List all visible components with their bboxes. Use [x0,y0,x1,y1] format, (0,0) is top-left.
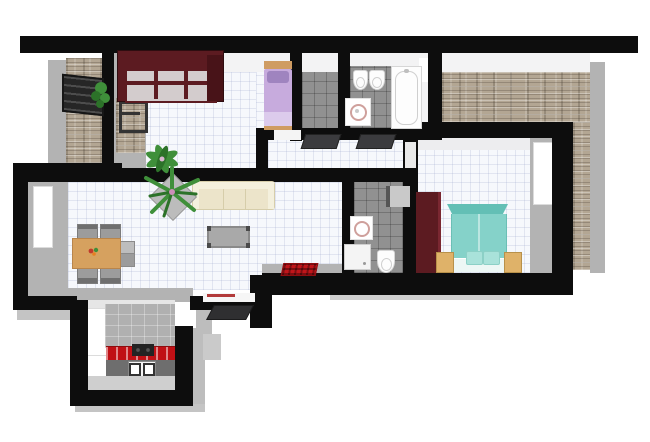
wardrobe-side-panel [207,55,223,101]
double-bed-pillow-left [466,251,483,265]
bidet-bowl [356,77,365,88]
terrace-stone-floor-right [573,122,590,270]
sofa-cushion-divider-1 [223,189,224,209]
wall-hallway-south [268,168,412,182]
wall-kitchen-nook-east [175,326,193,406]
bedroom-master-window [533,142,554,205]
washbasin-main-drain [355,109,359,113]
entrance-doormat [206,305,254,320]
coffee-table [207,226,250,248]
bedroom-small-window-railing-bar [121,112,140,115]
kitchen-wall-tiles [105,304,175,348]
bathtub [391,66,422,129]
kitchen-cooktop [132,344,154,356]
coffee-table-leg-2 [246,226,250,231]
single-bed-headboard [264,61,292,69]
sofa-cushion-divider-2 [245,189,246,209]
wardrobe-rail [125,81,213,85]
wall-bedroom-small-south [13,168,256,182]
nightstand-right [504,252,522,273]
coffee-table-leg-1 [207,226,211,231]
wardrobe-divider-2 [184,69,188,99]
shower-drain [363,262,366,265]
ensuite-cabinet [386,186,410,207]
single-bed-pillow [267,71,289,83]
wall-living-west [13,168,28,310]
wardrobe-divider-1 [154,69,158,99]
toilet-ensuite [377,250,395,273]
terrace-wall-face [442,53,590,73]
single-bed [264,58,292,131]
bathroom-main-north-wall-face [350,53,418,66]
hallway-doormat-right [356,134,397,149]
terrace-outer-wall-face [590,62,605,273]
wardrobe-small-bedroom [117,50,224,102]
bathtub-inner [395,71,418,125]
entrance-inner-rug-edge [207,294,235,297]
washbasin-ensuite-bowl [354,221,370,237]
floor-plan-canvas [0,0,650,442]
single-bed-foot-rail [264,126,292,130]
wardrobe-interior [125,69,217,103]
wall-south-main-shadow [330,295,510,300]
sofa-arm-right [268,182,274,209]
washbasin-main-mat [345,98,371,126]
shower-tray [344,244,371,270]
wall-bedroom-master-east [552,122,573,285]
bedroom-small-window-railing [119,101,148,133]
wall-living-south-west [13,296,77,310]
double-bed-pillow-right [483,251,500,265]
coffee-table-leg-3 [207,243,211,248]
coffee-table-leg-4 [246,243,250,248]
red-rug [281,263,319,276]
wall-outer-face-a [17,310,77,320]
terrace-stone-floor-top [442,72,590,122]
wall-bathroom-main-east [428,36,442,140]
closet-north-wall-face [302,53,338,72]
kitchen-nook-floor [88,376,175,391]
washbasin-main-bowl [350,104,367,121]
oven-door-right [143,363,155,376]
single-bed-foot-fold [264,112,292,126]
bidet [353,70,368,90]
oven-door-left [129,363,141,376]
toilet-main-seat [372,77,382,88]
toilet-main [369,70,385,90]
palm-plant-icon [136,160,208,222]
dining-centerpiece-icon [86,245,102,258]
balcony-plant-icon [90,80,112,110]
bathtub-faucet [404,69,409,73]
hallway-doormat-left [301,134,342,149]
door-gap-bedroom-small [274,130,301,140]
living-room-window [33,186,53,248]
wall-hallway-west-step [256,128,268,182]
toilet-ensuite-seat [381,258,392,271]
door-gap-bedroom-master [405,142,416,168]
nightstand-left [436,252,454,273]
wall-outer-face-e [203,334,221,360]
washbasin-ensuite-mat [350,216,373,240]
